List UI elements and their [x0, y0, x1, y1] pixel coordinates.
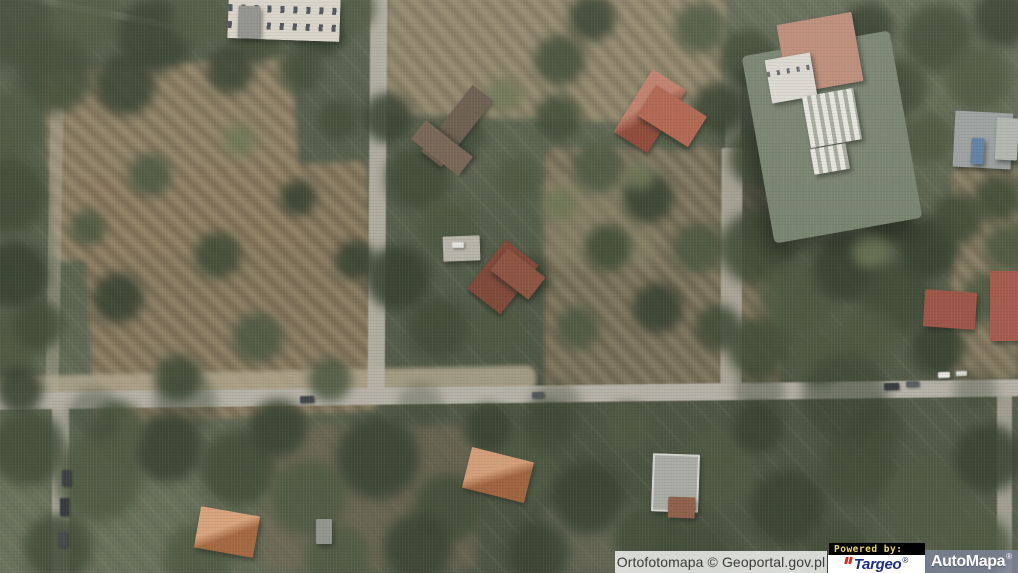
aerial-photo[interactable] [0, 0, 1018, 573]
complex-skylights [802, 88, 862, 148]
vehicle [906, 381, 919, 387]
tree-canopy [504, 519, 572, 573]
vehicle [532, 392, 544, 398]
vehicle [60, 498, 69, 516]
tree-canopy [850, 230, 890, 270]
tree-canopy [982, 222, 1018, 274]
tree-canopy [554, 304, 602, 352]
vehicle [956, 371, 967, 376]
tree-canopy [542, 187, 578, 223]
powered-by-bar: Powered by: [829, 543, 925, 555]
tree-canopy [566, 0, 618, 44]
tree-canopy [278, 178, 318, 218]
tree-canopy [532, 92, 584, 144]
vehicle [938, 372, 950, 378]
driveway-pad [443, 235, 481, 261]
automapa-wordmark: AutoMapa [931, 554, 1005, 570]
tree-canopy [395, 380, 445, 430]
tree-canopy [942, 42, 1014, 114]
tree-canopy [192, 229, 244, 281]
tree-canopy [230, 310, 286, 366]
vehicle [300, 396, 314, 403]
pool-blue [970, 138, 984, 165]
tree-canopy [316, 98, 360, 142]
tree-canopy [600, 400, 656, 456]
tree-canopy [732, 364, 788, 420]
tree-canopy [302, 522, 374, 573]
tree-canopy [90, 270, 146, 326]
tree-canopy [525, 378, 585, 438]
tree-canopy [570, 140, 626, 196]
tree-canopy [222, 122, 258, 158]
targeo-quote-icon [845, 557, 852, 564]
house-red-right-a [923, 289, 977, 330]
tree-canopy [462, 402, 514, 454]
tree-canopy [65, 385, 125, 445]
automapa-registered-mark: ® [1006, 552, 1012, 561]
attribution-bar: Ortofotomapa © Geoportal.gov.pl [615, 551, 827, 573]
tree-canopy [91, 51, 159, 119]
tree-canopy [0, 153, 50, 237]
house-gray-ne-annex [995, 117, 1018, 160]
tree-canopy [494, 154, 542, 202]
shed-small [316, 519, 332, 544]
tree-canopy [972, 172, 1018, 224]
tree-canopy [68, 208, 108, 248]
tree-canopy [970, 0, 1018, 50]
tree-canopy [246, 396, 310, 460]
vehicle [58, 532, 67, 547]
tree-canopy [582, 222, 634, 274]
tree-canopy [0, 87, 48, 163]
tree-canopy [950, 420, 1018, 496]
tree-canopy [797, 350, 893, 446]
tree-canopy [204, 44, 256, 96]
map-viewport[interactable]: Ortofotomapa © Geoportal.gov.pl Powered … [0, 0, 1018, 573]
tree-canopy [630, 280, 686, 336]
vehicle [62, 470, 71, 486]
tree-canopy [10, 297, 66, 353]
targeo-wordmark: Targeo [854, 557, 902, 572]
tree-canopy [276, 46, 324, 94]
vehicle [452, 242, 464, 248]
tree-canopy [380, 510, 456, 573]
targeo-registered-mark: ® [902, 556, 908, 565]
tree-canopy [150, 367, 220, 437]
tree-canopy [624, 159, 656, 191]
powered-by-label: Powered by: [834, 544, 902, 555]
attribution-text: Ortofotomapa © Geoportal.gov.pl [617, 554, 826, 570]
modern-building-wing [668, 497, 696, 519]
tree-canopy [168, 0, 232, 50]
tree-canopy [404, 294, 472, 362]
targeo-logo[interactable]: Targeo ® [828, 555, 925, 573]
mansion-tower [237, 6, 260, 39]
vehicle [884, 383, 899, 391]
house-red-right-b [990, 271, 1018, 341]
tree-canopy [360, 90, 416, 146]
automapa-logo[interactable]: AutoMapa ® [925, 550, 1018, 573]
tree-canopy [485, 75, 525, 115]
tree-canopy [126, 151, 174, 199]
